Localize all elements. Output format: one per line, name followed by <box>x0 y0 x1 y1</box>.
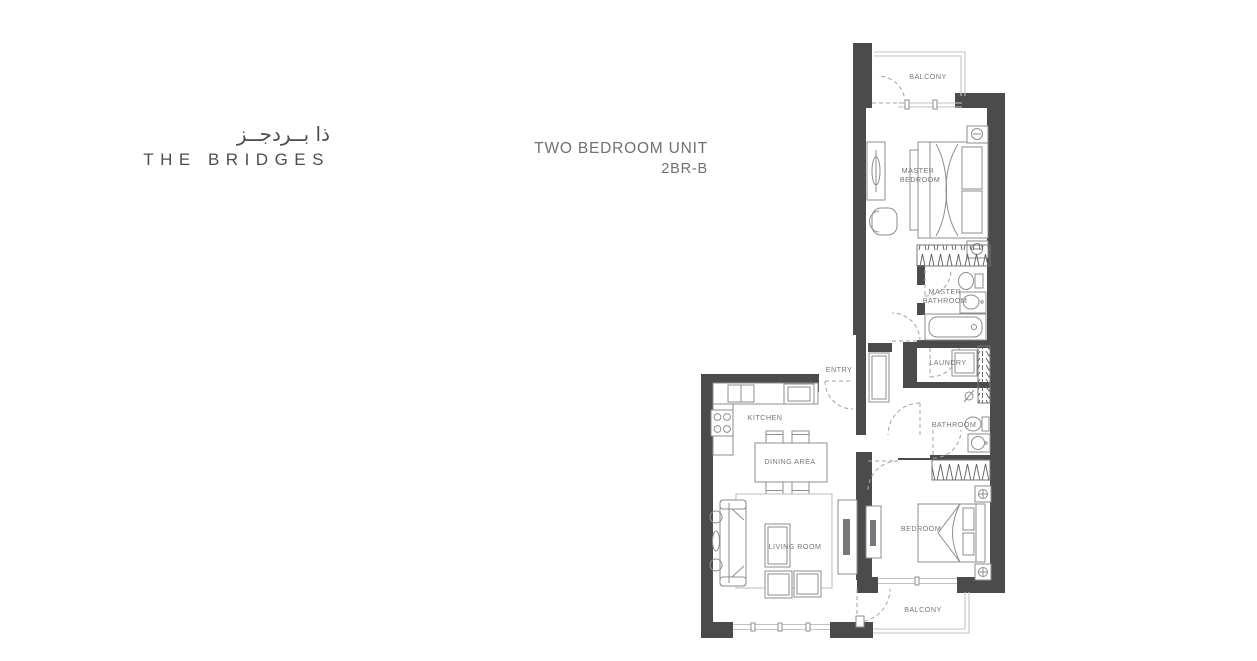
bedroom-window <box>878 577 957 585</box>
ottoman-1 <box>765 571 792 598</box>
door-balcony-top <box>872 76 905 103</box>
label-laundry: LAUNDRY <box>929 358 966 367</box>
living-tv-unit <box>838 500 857 574</box>
label-dining-area: DINING AREA <box>764 457 815 466</box>
master-chair <box>870 208 897 235</box>
label-kitchen: KITCHEN <box>748 413 783 422</box>
bathroom-sink <box>968 434 990 452</box>
floorplan-page: ذا بــردجــز THE BRIDGES TWO BEDROOM UNI… <box>0 0 1257 661</box>
bedroom-nightstand-bottom <box>975 564 991 580</box>
bathroom-fitting <box>964 390 974 402</box>
door-master-suite <box>892 313 920 341</box>
label-master-bedroom-1: MASTER <box>902 166 935 175</box>
label-balcony-top: BALCONY <box>909 72 947 81</box>
service-shaft <box>978 346 990 403</box>
label-master-bathroom-2: BATHROOM <box>923 296 968 305</box>
bedroom-wardrobe <box>932 460 990 480</box>
label-entry: ENTRY <box>826 365 852 374</box>
kitchen-stove <box>711 410 733 455</box>
door-bedroom <box>868 461 898 491</box>
door-balcony-bottom <box>856 589 890 627</box>
label-bathroom: BATHROOM <box>932 420 977 429</box>
master-nightstand-top <box>967 126 988 143</box>
ottoman-2 <box>794 571 821 597</box>
sofa <box>720 500 746 586</box>
master-bathtub <box>925 314 986 340</box>
living-room-window <box>733 623 830 631</box>
label-master-bathroom-1: MASTER <box>929 287 962 296</box>
label-balcony-bottom: BALCONY <box>904 605 942 614</box>
bedroom-nightstand-top <box>975 486 991 502</box>
label-living-room: LIVING ROOM <box>769 542 822 551</box>
bedroom-bed <box>918 504 985 562</box>
door-bathroom <box>933 430 961 458</box>
door-entry <box>825 381 853 409</box>
label-bedroom: BEDROOM <box>901 524 941 533</box>
master-bed <box>910 142 988 238</box>
label-master-bedroom-2: BEDROOM <box>900 175 940 184</box>
floorplan-svg: BALCONY MASTER BEDROOM MASTER BATHROOM L… <box>0 0 1257 661</box>
door-bath-vestibule <box>888 403 920 435</box>
master-dresser <box>867 142 885 200</box>
master-toilet <box>959 273 984 290</box>
entry-console <box>869 353 889 402</box>
master-wardrobe <box>917 245 990 266</box>
bedroom-tv-unit <box>866 506 881 558</box>
